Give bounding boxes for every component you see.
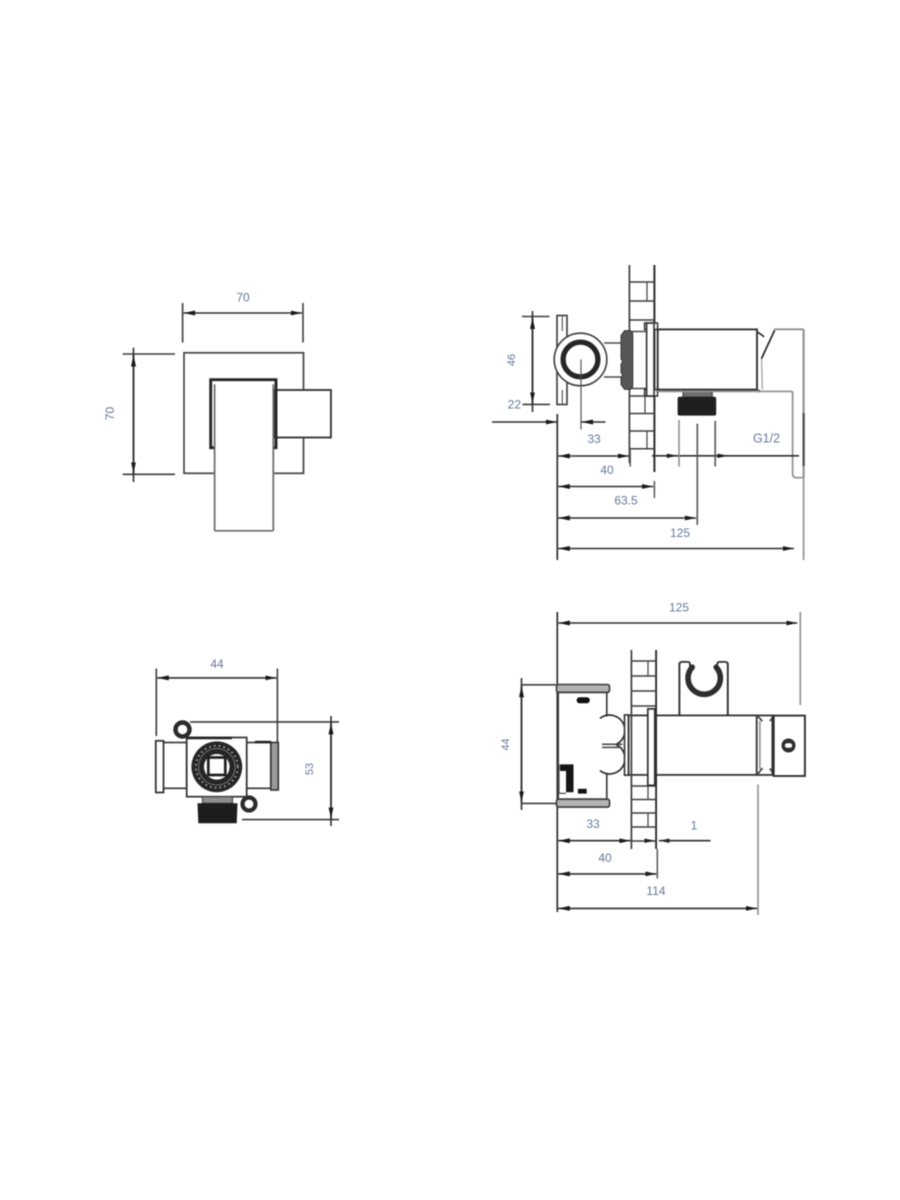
svg-text:40: 40 xyxy=(598,851,612,865)
svg-text:44: 44 xyxy=(210,657,224,671)
svg-text:125: 125 xyxy=(670,526,690,540)
svg-text:33: 33 xyxy=(587,432,601,446)
svg-text:125: 125 xyxy=(669,601,689,615)
svg-text:46: 46 xyxy=(506,354,518,366)
svg-text:114: 114 xyxy=(646,884,665,898)
svg-text:1: 1 xyxy=(691,819,698,833)
svg-text:53: 53 xyxy=(304,763,316,775)
svg-text:70: 70 xyxy=(103,407,117,421)
svg-text:G1/2: G1/2 xyxy=(753,432,780,446)
svg-text:33: 33 xyxy=(586,817,600,831)
svg-text:70: 70 xyxy=(236,291,250,305)
svg-text:22: 22 xyxy=(508,398,522,412)
svg-text:44: 44 xyxy=(500,738,512,750)
svg-text:63.5: 63.5 xyxy=(614,494,638,508)
svg-text:40: 40 xyxy=(600,463,614,477)
